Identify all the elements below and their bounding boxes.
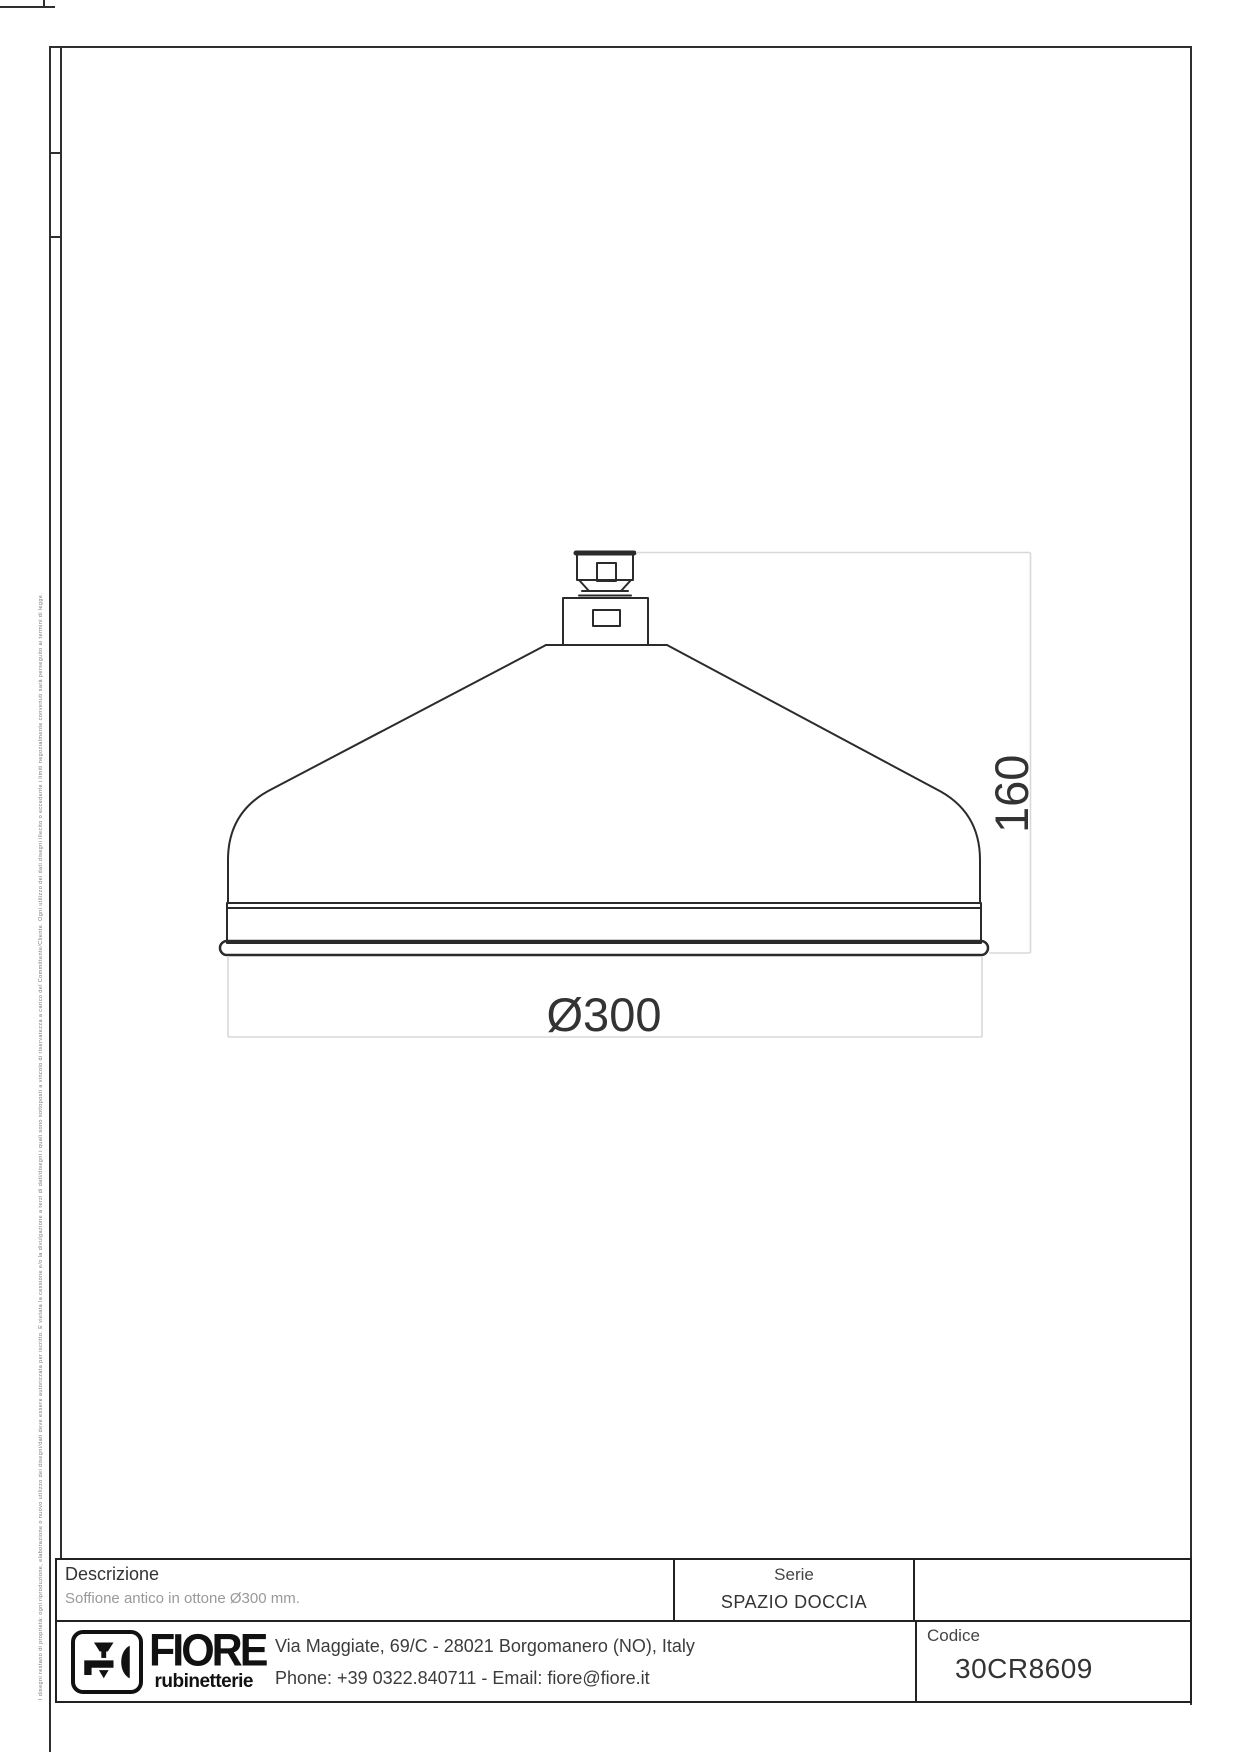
- block-inner-window: [593, 610, 620, 626]
- datasheet-page: { "document": { "disclaimer": "I disegni…: [0, 0, 1241, 1754]
- contacts-line: Phone: +39 0322.840711 - Email: fiore@fi…: [275, 1662, 695, 1694]
- dimension-label-height: 160: [985, 755, 1038, 833]
- neck-right-taper: [621, 580, 631, 591]
- descrizione-cell: Descrizione Soffione antico in ottone Ø3…: [57, 1560, 675, 1622]
- descrizione-label: Descrizione: [65, 1564, 665, 1585]
- company-cell: FIORE rubinetterie Via Maggiate, 69/C - …: [57, 1622, 917, 1701]
- descrizione-value: Soffione antico in ottone Ø300 mm.: [65, 1590, 665, 1607]
- neck-left-taper: [579, 580, 589, 591]
- connector-cap: [577, 552, 633, 580]
- title-block-row-2: FIORE rubinetterie Via Maggiate, 69/C - …: [57, 1622, 1190, 1701]
- codice-value: 30CR8609: [955, 1653, 1180, 1685]
- dimension-label-diameter: Ø300: [547, 988, 662, 1041]
- company-logo: FIORE rubinetterie: [71, 1630, 253, 1694]
- codice-cell: Codice 30CR8609: [917, 1622, 1190, 1701]
- title-block: Descrizione Soffione antico in ottone Ø3…: [55, 1558, 1192, 1703]
- serie-label: Serie: [675, 1565, 913, 1585]
- serie-value: SPAZIO DOCCIA: [675, 1592, 913, 1613]
- empty-cell: [915, 1560, 1190, 1622]
- logo-text: FIORE rubinetterie: [149, 1631, 253, 1693]
- mounting-block: [563, 598, 648, 645]
- address-line: Via Maggiate, 69/C - 28021 Borgomanero (…: [275, 1630, 695, 1662]
- title-block-row-1: Descrizione Soffione antico in ottone Ø3…: [57, 1560, 1190, 1622]
- faucet-logo-icon: [71, 1630, 143, 1694]
- cap-inner-square: [597, 563, 616, 581]
- shower-head-technical-drawing: Ø300 160: [0, 0, 1241, 1754]
- codice-label: Codice: [927, 1626, 1180, 1646]
- serie-cell: Serie SPAZIO DOCCIA: [675, 1560, 915, 1622]
- faucet-icon: [81, 1639, 133, 1685]
- company-address: Via Maggiate, 69/C - 28021 Borgomanero (…: [275, 1630, 695, 1694]
- bell-right-profile: [667, 645, 980, 903]
- brand-name: FIORE: [149, 1631, 253, 1671]
- bell-left-profile: [228, 645, 546, 903]
